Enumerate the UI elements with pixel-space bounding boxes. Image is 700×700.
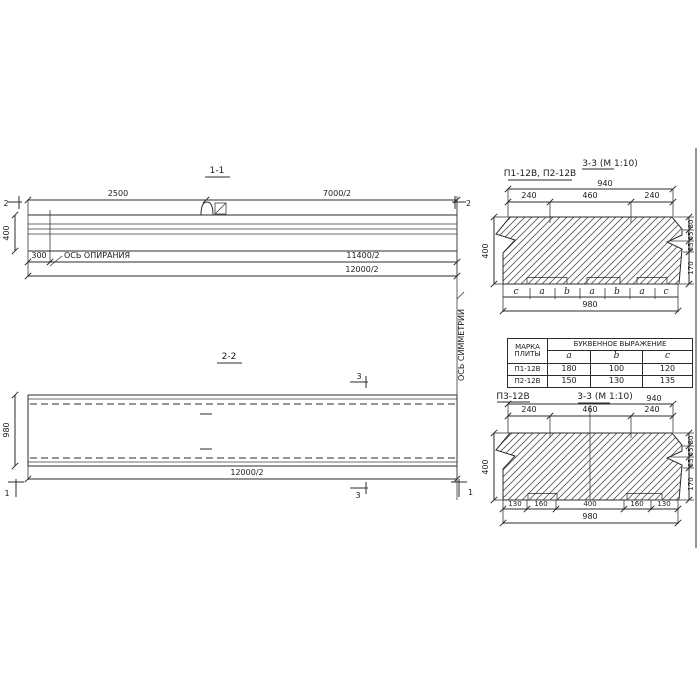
dim-240-right: 240 — [644, 191, 659, 200]
slab-elevation-outline — [28, 200, 457, 277]
table-cell-a: 150 — [548, 376, 591, 388]
dimension-top: 2500 7000/2 — [25, 189, 460, 203]
dim-80-b: 80 — [687, 436, 695, 445]
letter-a-1: a — [539, 287, 544, 297]
cut-2-label-left: 2 — [3, 199, 8, 208]
table-row: П1-12В 180 100 120 — [508, 364, 693, 376]
table-subheader-c: c — [643, 351, 693, 364]
dimension-length-12000: 12000/2 — [25, 466, 460, 482]
dim-130-right: 130 — [657, 500, 670, 508]
table-subheader-b: b — [591, 351, 643, 364]
letter-a-3: a — [639, 287, 644, 297]
symmetry-axis: ОСЬ СИММЕТРИИ — [457, 196, 466, 500]
dim-240-left: 240 — [521, 191, 536, 200]
cut-mark-2-right: 2 — [452, 196, 471, 209]
dim-11400-2: 11400/2 — [346, 251, 379, 260]
table-cell-mark: П1-12В — [508, 364, 548, 376]
section-2-2-view: 2-2 3 980 — [2, 352, 473, 500]
dimension-width-980: 980 — [2, 392, 18, 469]
dim-170: 170 — [687, 261, 695, 274]
dimension-980-top-section: 980 — [500, 300, 681, 314]
dim-130-left: 130 — [508, 500, 521, 508]
letter-b-2: b — [614, 287, 620, 297]
cut-mark-2-left: 2 — [3, 196, 22, 209]
section-3-3-bottom-title: 3-3 (М 1:10) — [577, 392, 632, 402]
dim-65-a: 65 — [687, 232, 695, 241]
cut-1-label-right: 1 — [468, 488, 473, 497]
dim-980-plan: 980 — [2, 422, 11, 437]
dim-400-cross: 400 — [481, 243, 490, 258]
dim-460: 460 — [582, 191, 597, 200]
letter-b-1: b — [564, 287, 570, 297]
dim-7000-2: 7000/2 — [323, 189, 351, 198]
letter-a-2: a — [589, 287, 594, 297]
dimension-980-bottom-section: 980 — [500, 512, 681, 526]
table-cell-c: 120 — [643, 364, 693, 376]
cut-1-label-left: 1 — [4, 489, 9, 498]
bearing-axis-label: ОСЬ ОПИРАНИЯ — [64, 251, 130, 260]
table-subheader-a: a — [548, 351, 591, 364]
dim-65-a-b: 65 — [687, 448, 695, 457]
table-header-expression: БУКВЕННОЕ ВЫРАЖЕНИЕ — [548, 339, 693, 351]
cross-section-hatched-bottom — [496, 405, 682, 500]
section-1-1-title: 1-1 — [210, 166, 225, 176]
dim-980-cross-bottom: 980 — [582, 512, 597, 521]
plate-parameters-table: МАРКА ПЛИТЫ БУКВЕННОЕ ВЫРАЖЕНИЕ a b c П1… — [507, 338, 693, 388]
table-cell-b: 100 — [591, 364, 643, 376]
dim-160-left: 160 — [534, 500, 547, 508]
dimension-bottom-rows: 300 ОСЬ ОПИРАНИЯ 11400/2 12000/2 — [25, 251, 460, 279]
dim-240-left-b: 240 — [521, 405, 536, 414]
cut-3-label-bottom: 3 — [355, 491, 360, 500]
table-cell-a: 180 — [548, 364, 591, 376]
cross-section-hatched — [496, 217, 682, 284]
slab-plan-outline — [28, 395, 457, 466]
dim-300: 300 — [31, 251, 46, 260]
dim-400: 400 — [2, 225, 11, 240]
dim-940: 940 — [597, 179, 612, 188]
dim-400-cross-b: 400 — [481, 459, 490, 474]
table-row: П2-12В 150 130 135 — [508, 376, 693, 388]
dim-12000-2-top: 12000/2 — [345, 265, 378, 274]
dim-240-right-b: 240 — [644, 405, 659, 414]
dim-12000-2-plan: 12000/2 — [230, 468, 263, 477]
cut-3-label-top: 3 — [356, 372, 361, 381]
marks-p1-p2-label: П1-12В, П2-12В — [504, 169, 576, 179]
section-3-3-bottom-view: П3-12В 3-3 (М 1:10) 940 240 460 240 — [481, 392, 695, 526]
dim-400-bottom: 400 — [583, 500, 596, 508]
mark-p3-label: П3-12В — [496, 392, 529, 402]
cut-mark-1-right: 1 — [451, 479, 473, 497]
section-2-2-title: 2-2 — [222, 352, 237, 362]
table-cell-c: 135 — [643, 376, 693, 388]
dim-940-bottom: 940 — [646, 394, 661, 403]
dim-2500: 2500 — [108, 189, 128, 198]
section-1-1-view: 1-1 2500 7000/2 2 2 — [2, 166, 471, 279]
lifting-loop — [201, 202, 226, 215]
dimension-height-400: 400 — [2, 212, 18, 254]
cut-2-label-right: 2 — [466, 199, 471, 208]
letter-c-1: c — [513, 287, 518, 297]
dim-160-right: 160 — [630, 500, 643, 508]
section-3-3-top-title: 3-3 (М 1:10) — [582, 159, 637, 169]
table-header-mark: МАРКА ПЛИТЫ — [508, 339, 548, 364]
dim-65-b-b: 65 — [687, 459, 695, 468]
drawing-sheet: 1-1 2500 7000/2 2 2 — [0, 0, 700, 700]
symmetry-axis-label: ОСЬ СИММЕТРИИ — [457, 309, 466, 381]
dim-980-cross-top: 980 — [582, 300, 597, 309]
table-cell-b: 130 — [591, 376, 643, 388]
letter-c-2: c — [663, 287, 668, 297]
dim-65-b: 65 — [687, 243, 695, 252]
cut-mark-1-left: 1 — [4, 479, 24, 498]
cut-mark-3-bottom: 3 — [350, 482, 368, 500]
dim-80: 80 — [687, 220, 695, 229]
cut-mark-3-top: 3 — [350, 372, 368, 388]
section-3-3-top-view: 3-3 (М 1:10) П1-12В, П2-12В 940 240 460 … — [481, 159, 695, 314]
table-cell-mark: П2-12В — [508, 376, 548, 388]
dim-170-b: 170 — [687, 477, 695, 490]
